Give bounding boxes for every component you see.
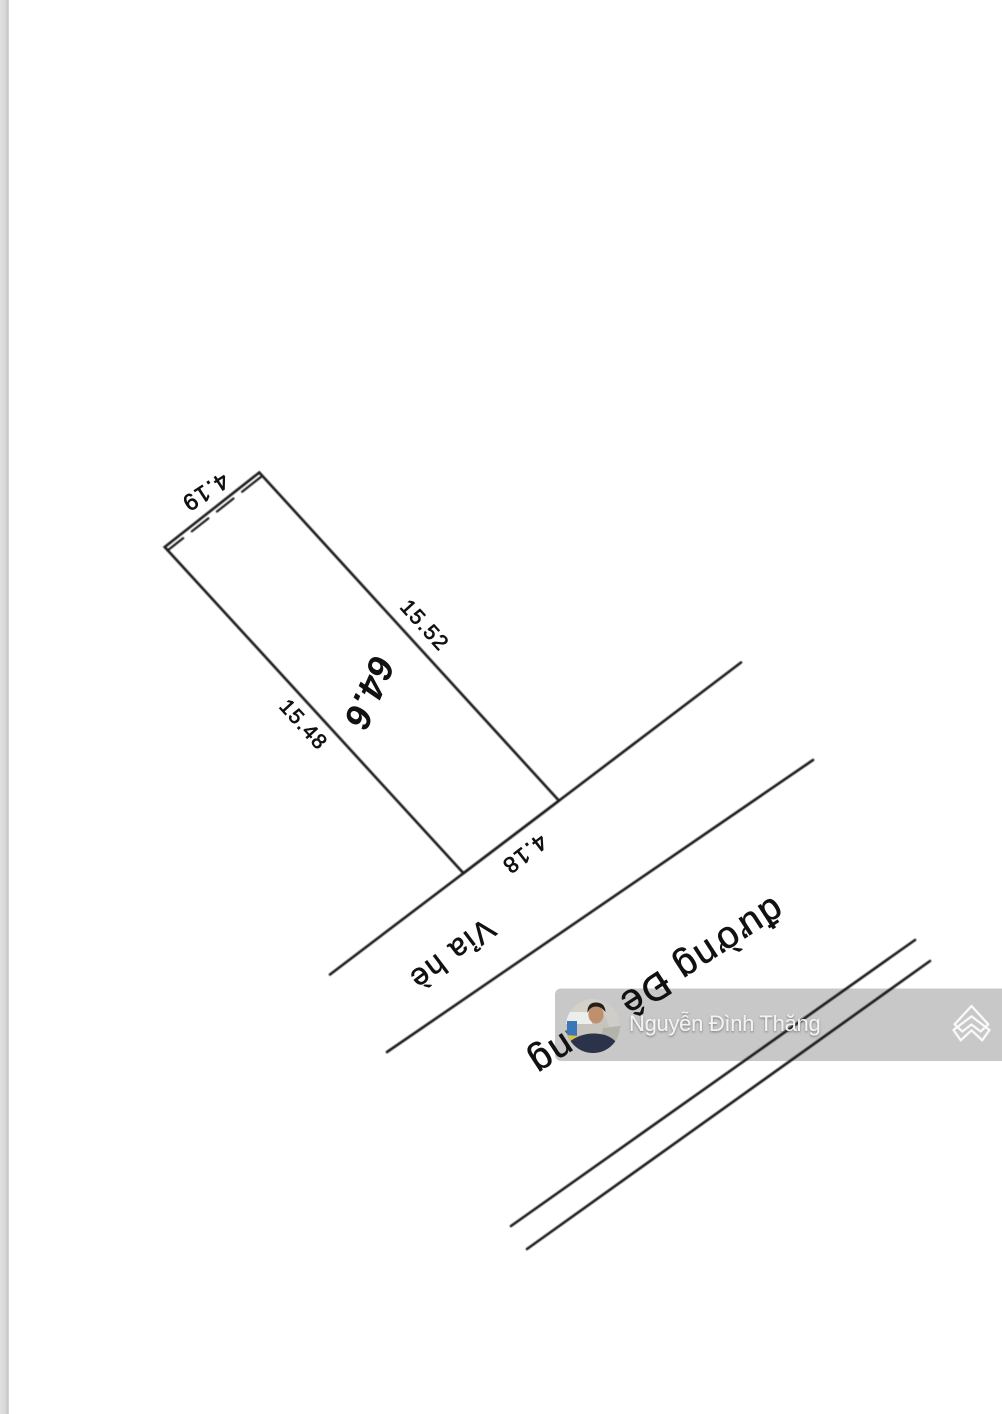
svg-text:4.19: 4.19	[177, 468, 234, 517]
svg-text:15.48: 15.48	[275, 695, 332, 755]
svg-text:15.52: 15.52	[395, 595, 454, 656]
svg-text:Vỉa hè: Vỉa hè	[403, 911, 502, 998]
svg-text:64.6: 64.6	[336, 650, 404, 735]
svg-text:Nguyễn Đình Thăng: Nguyễn Đình Thăng	[629, 1011, 820, 1036]
svg-text:4.18: 4.18	[497, 829, 552, 879]
